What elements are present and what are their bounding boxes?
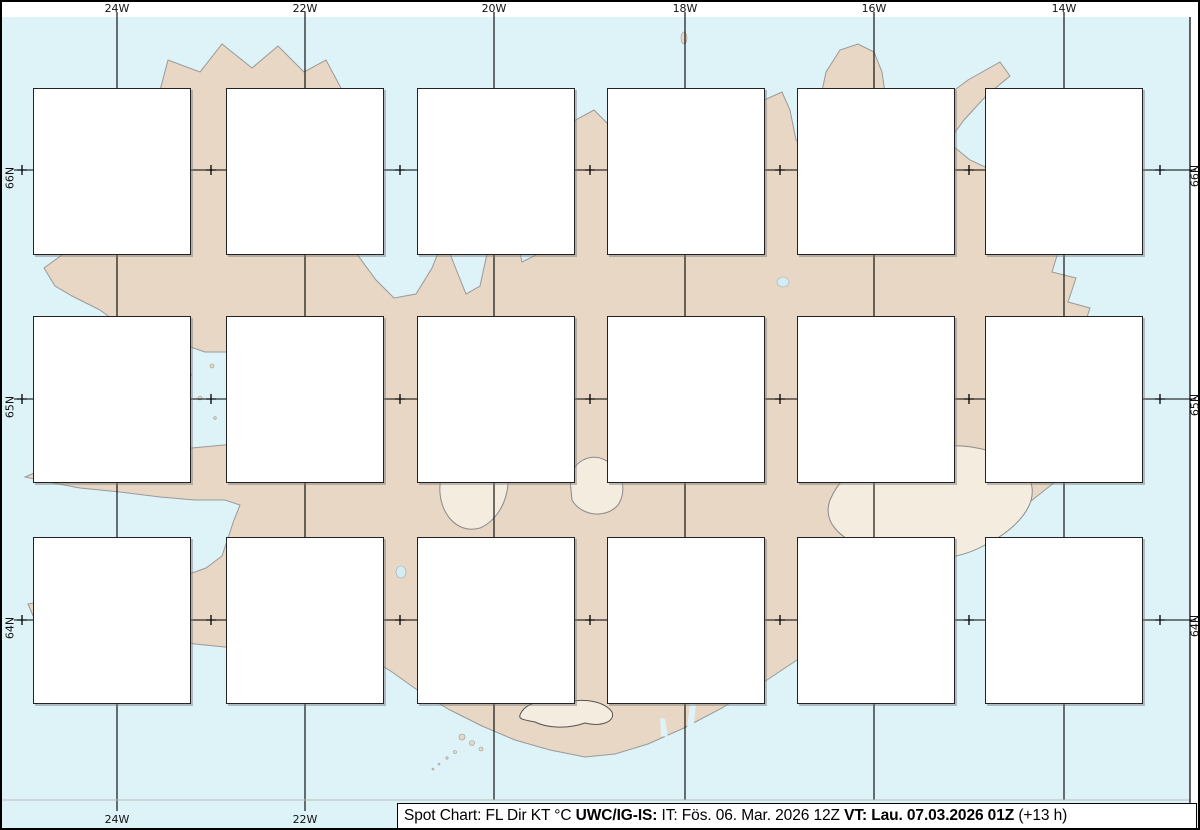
lon-label-top: 20W (482, 2, 507, 15)
station-box-r2c2 (417, 537, 575, 704)
caption-text: (+13 h) (1014, 807, 1067, 825)
lat-label-left: 64N (4, 617, 17, 639)
caption-bold-text: UWC/IG-IS: (576, 807, 658, 825)
station-box-r0c3 (607, 88, 765, 255)
caption-bar: Spot Chart: FL Dir KT °C UWC/IG-IS: IT: … (397, 803, 1197, 829)
station-box-r2c4 (797, 537, 955, 704)
station-box-r2c3 (607, 537, 765, 704)
lon-label-bottom: 22W (293, 813, 318, 826)
lat-label-right: 65N (1189, 394, 1200, 416)
lat-label-left: 65N (4, 396, 17, 418)
station-box-r1c4 (797, 316, 955, 483)
lat-label-right: 66N (1189, 165, 1200, 187)
station-box-r0c2 (417, 88, 575, 255)
caption-bold-text: VT: Lau. 07.03.2026 01Z (844, 807, 1014, 825)
top-margin (0, 0, 1200, 17)
lon-label-top: 18W (673, 2, 698, 15)
station-box-r1c0 (33, 316, 191, 483)
station-box-r1c1 (226, 316, 384, 483)
station-box-r0c4 (797, 88, 955, 255)
station-box-r1c3 (607, 316, 765, 483)
station-box-r1c2 (417, 316, 575, 483)
lon-label-top: 16W (862, 2, 887, 15)
spot-chart: 24W22W20W18W16W14W24W22W66N66N65N65N64N6… (0, 0, 1200, 830)
caption-text: Spot Chart: FL Dir KT °C (404, 807, 576, 825)
lon-label-top: 24W (105, 2, 130, 15)
station-box-r2c5 (985, 537, 1143, 704)
lon-label-bottom: 24W (105, 813, 130, 826)
lon-label-top: 14W (1052, 2, 1077, 15)
caption-text: IT: Fös. 06. Mar. 2026 12Z (657, 807, 844, 825)
station-box-r0c0 (33, 88, 191, 255)
lat-label-left: 66N (4, 167, 17, 189)
station-box-r0c5 (985, 88, 1143, 255)
station-box-r1c5 (985, 316, 1143, 483)
station-box-r0c1 (226, 88, 384, 255)
lat-label-right: 64N (1189, 615, 1200, 637)
station-box-r2c0 (33, 537, 191, 704)
station-box-r2c1 (226, 537, 384, 704)
lon-label-top: 22W (293, 2, 318, 15)
